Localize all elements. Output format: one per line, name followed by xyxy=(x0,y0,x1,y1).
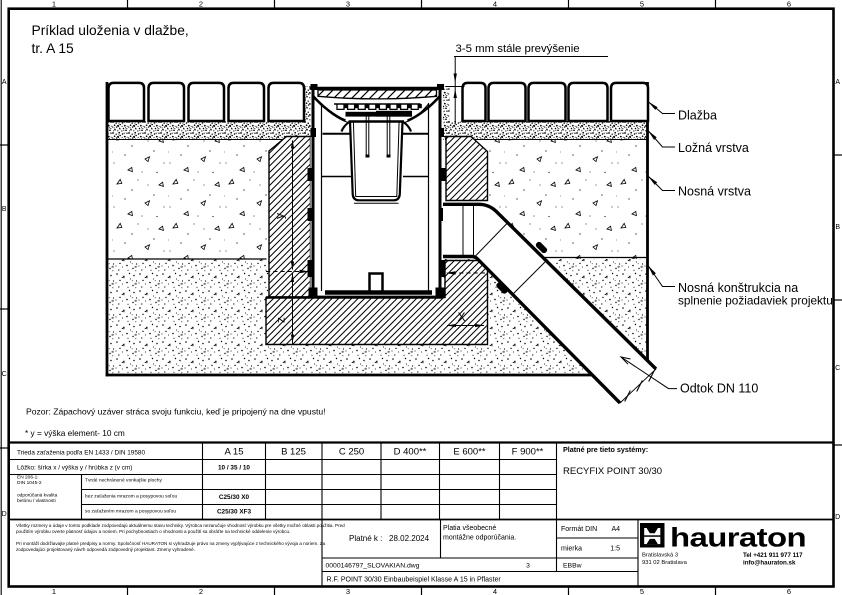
svg-text:3: 3 xyxy=(526,563,530,570)
svg-text:Pozor: Zápachový uzáver stráca: Pozor: Zápachový uzáver stráca svoju fun… xyxy=(26,407,326,417)
svg-text:10 / 35 / 10: 10 / 35 / 10 xyxy=(218,465,250,472)
svg-text:4: 4 xyxy=(493,0,497,9)
svg-text:C 250: C 250 xyxy=(339,447,364,458)
svg-text:B: B xyxy=(2,206,7,213)
svg-text:2: 2 xyxy=(199,587,203,595)
svg-text:E 600**: E 600** xyxy=(453,447,486,458)
svg-text:Nosná vrstva: Nosná vrstva xyxy=(678,185,751,199)
svg-text:4: 4 xyxy=(493,587,497,595)
svg-text:6: 6 xyxy=(787,587,791,595)
svg-text:hauraton: hauraton xyxy=(670,523,806,553)
svg-text:B 125: B 125 xyxy=(281,447,306,458)
svg-text:použitím výrobku overte platno: použitím výrobku overte platnosť údajov … xyxy=(16,529,290,534)
svg-text:DIN 1045-2: DIN 1045-2 xyxy=(17,480,42,486)
svg-text:Platné pre tieto systémy:: Platné pre tieto systémy: xyxy=(563,445,648,454)
svg-text:F 900**: F 900** xyxy=(512,447,544,458)
svg-text:C25/30 X0: C25/30 X0 xyxy=(219,494,250,501)
svg-text:3: 3 xyxy=(346,0,350,9)
svg-text:C25/30 XF3: C25/30 XF3 xyxy=(217,509,252,516)
svg-text:C: C xyxy=(835,365,840,372)
svg-text:Tvrdé nechránené vonkajšie plo: Tvrdé nechránené vonkajšie plochy xyxy=(85,478,162,484)
svg-text:EN 206-1:: EN 206-1: xyxy=(17,475,39,481)
svg-text:odporúčaná kvalita: odporúčaná kvalita xyxy=(17,493,58,499)
svg-text:z: z xyxy=(274,317,288,323)
svg-text:6: 6 xyxy=(787,0,791,9)
svg-text:RECYFIX POINT 30/30: RECYFIX POINT 30/30 xyxy=(563,466,662,477)
svg-text:Ložná vrstva: Ložná vrstva xyxy=(678,141,749,155)
svg-text:3: 3 xyxy=(346,587,350,595)
svg-text:Tel +421 911 977 117: Tel +421 911 977 117 xyxy=(743,552,803,559)
svg-text:D: D xyxy=(2,511,7,518)
svg-text:931 02 Bratislava: 931 02 Bratislava xyxy=(642,560,688,566)
svg-text:28.02.2024: 28.02.2024 xyxy=(389,534,430,543)
svg-text:5: 5 xyxy=(640,0,644,9)
svg-text:Formát DIN: Formát DIN xyxy=(561,526,597,533)
svg-text:Príklad uloženia v dlažbe,: Príklad uloženia v dlažbe, xyxy=(32,23,189,38)
svg-text:1: 1 xyxy=(52,0,56,9)
svg-text:Dlažba: Dlažba xyxy=(678,109,717,123)
svg-text:A: A xyxy=(2,79,7,86)
svg-text:Platia všeobecné: Platia všeobecné xyxy=(443,525,496,532)
svg-text:montážne odporúčania.: montážne odporúčania. xyxy=(443,535,516,542)
svg-text:* y = výška element- 10 cm: * y = výška element- 10 cm xyxy=(25,428,125,438)
svg-text:Všetky rozmery a údaje v tomto: Všetky rozmery a údaje v tomto podklade … xyxy=(16,523,345,528)
svg-text:mierka: mierka xyxy=(561,546,582,553)
svg-text:Pri montáži dodržiavajte platn: Pri montáži dodržiavajte platné predpisy… xyxy=(16,541,326,546)
svg-text:2: 2 xyxy=(199,0,203,9)
svg-text:1:5: 1:5 xyxy=(610,546,620,553)
svg-text:tr. A 15: tr. A 15 xyxy=(32,41,75,56)
svg-text:Lôžko: šírka x / výška y / hrú: Lôžko: šírka x / výška y / hrúbka z (v c… xyxy=(17,465,132,472)
svg-text:bez zaťaženia mrazom a posypov: bez zaťaženia mrazom a posypovou soľou xyxy=(85,494,177,500)
svg-text:Odtok DN 110: Odtok DN 110 xyxy=(680,382,758,396)
svg-text:C: C xyxy=(2,371,7,378)
svg-text:B: B xyxy=(835,224,840,231)
svg-text:zodpovedajúci projektovaný náv: zodpovedajúci projektovaný návrh odpoved… xyxy=(16,547,195,552)
svg-text:info@hauraton.sk: info@hauraton.sk xyxy=(743,560,796,567)
svg-text:1: 1 xyxy=(52,587,56,595)
svg-text:A4: A4 xyxy=(611,526,620,533)
svg-text:0000146797_SLOVAKIAN.dwg: 0000146797_SLOVAKIAN.dwg xyxy=(326,563,420,570)
svg-text:Trieda zaťaženia podľa EN 1433: Trieda zaťaženia podľa EN 1433 / DIN 195… xyxy=(17,450,145,457)
svg-text:y: y xyxy=(273,213,287,219)
svg-text:A 15: A 15 xyxy=(224,447,243,458)
svg-text:EBBw: EBBw xyxy=(563,563,582,570)
svg-text:Platné k :: Platné k : xyxy=(349,534,382,543)
svg-text:D: D xyxy=(835,514,840,521)
svg-text:splnenie požiadaviek projektu: splnenie požiadaviek projektu xyxy=(678,294,833,308)
svg-text:3-5 mm stále prevýšenie: 3-5 mm stále prevýšenie xyxy=(456,43,580,55)
svg-text:R.F. POINT 30/30 Einbaubeispie: R.F. POINT 30/30 Einbaubeispiel Klasse A… xyxy=(327,577,502,584)
svg-text:so zaťažením mrazom a posypovo: so zaťažením mrazom a posypovou soľou xyxy=(85,509,176,515)
svg-text:5: 5 xyxy=(640,587,644,595)
svg-text:D 400**: D 400** xyxy=(394,447,427,458)
svg-text:betónu / vlastnosti: betónu / vlastnosti xyxy=(17,498,56,504)
svg-text:Bratislavská 3: Bratislavská 3 xyxy=(642,553,678,559)
svg-text:A: A xyxy=(835,79,840,86)
svg-text:X: X xyxy=(457,310,465,324)
